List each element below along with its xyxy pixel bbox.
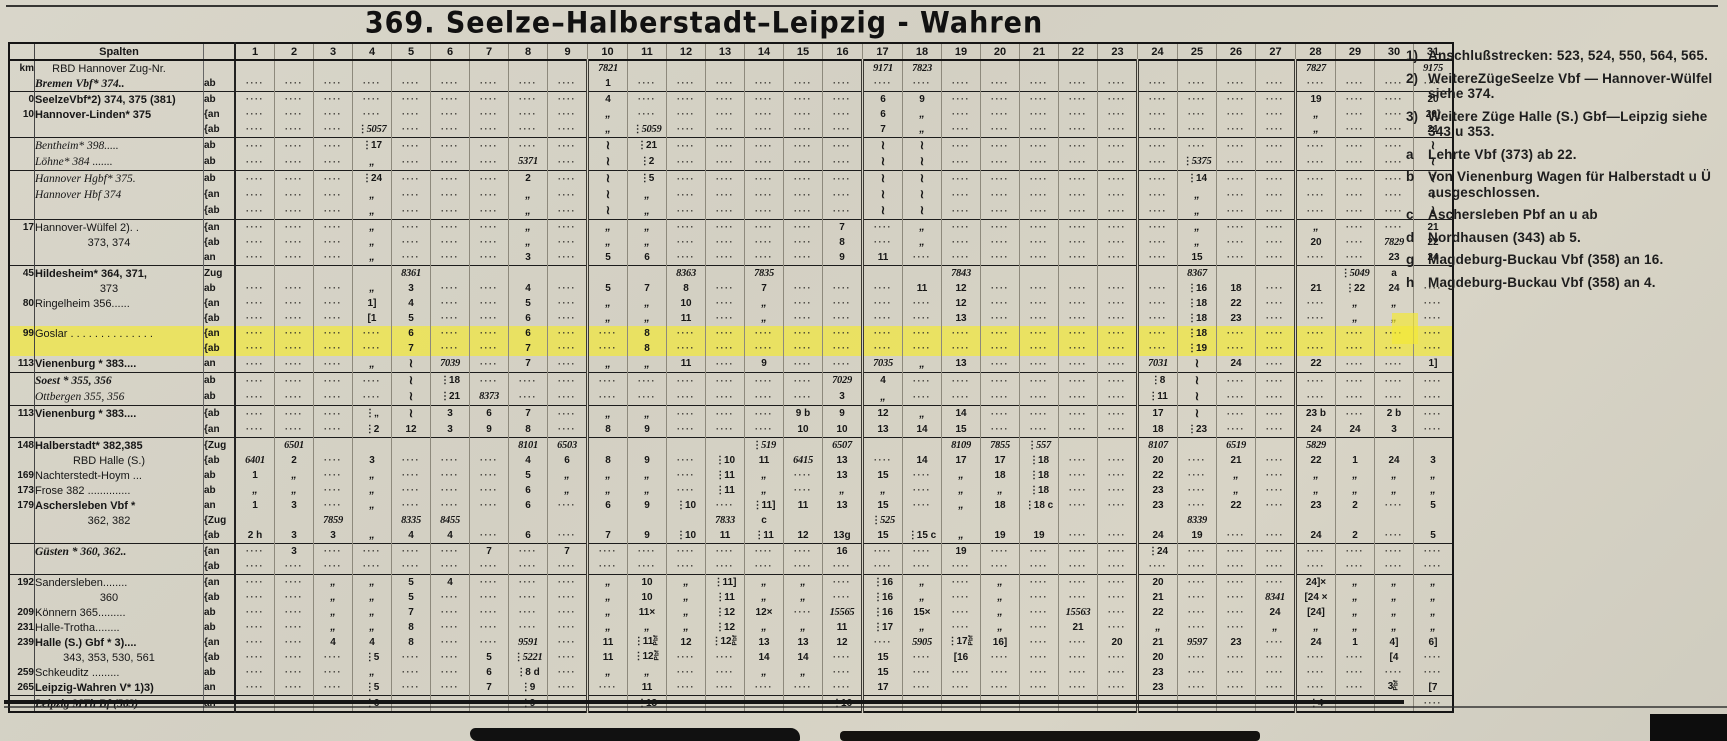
no-service-dots: ···· xyxy=(677,78,695,88)
time-cell: ···· xyxy=(981,406,1020,423)
arr-dep-label: {an xyxy=(204,296,236,311)
time-cell: ···· xyxy=(981,544,1020,560)
time-value: 7823 xyxy=(912,63,932,74)
no-service-dots: ···· xyxy=(794,313,812,323)
time-cell: ···· xyxy=(784,122,823,138)
time-cell: 6 xyxy=(509,528,548,544)
time-value: 24]× xyxy=(1306,577,1326,588)
no-service-dots: ···· xyxy=(1385,124,1403,134)
no-service-dots: ···· xyxy=(480,592,498,602)
no-service-dots: ···· xyxy=(1069,283,1087,293)
no-service-dots: ···· xyxy=(441,607,459,617)
no-service-dots: ···· xyxy=(1307,313,1325,323)
time-cell xyxy=(1098,513,1138,528)
time-cell: ···· xyxy=(275,171,314,188)
arr-dep-label: {ab xyxy=(204,453,236,468)
time-cell: ···· xyxy=(1336,373,1375,390)
time-cell: 11 xyxy=(667,311,706,326)
time-cell: 5 xyxy=(509,468,548,483)
table-row: 173Frose 382 ..............ab„„····„····… xyxy=(9,483,1453,498)
time-cell: ···· xyxy=(275,281,314,296)
no-service-dots: ···· xyxy=(246,94,264,104)
through-run-squiggle: ≀ xyxy=(409,389,414,403)
no-service-dots: ···· xyxy=(558,252,576,262)
no-service-dots: ···· xyxy=(441,94,459,104)
time-cell: ···· xyxy=(784,76,823,92)
time-cell: ···· xyxy=(1296,389,1336,406)
no-service-dots: ···· xyxy=(1069,141,1087,151)
time-cell: „ xyxy=(628,406,667,423)
time-cell: 9591 xyxy=(509,635,548,650)
no-service-dots: ···· xyxy=(519,141,537,151)
time-cell: 8455 xyxy=(431,513,470,528)
time-cell: „ xyxy=(823,483,863,498)
time-cell: 7821 xyxy=(588,60,628,76)
no-service-dots: ···· xyxy=(363,376,381,386)
time-value: 8107 xyxy=(1148,440,1168,451)
time-cell: ···· xyxy=(667,665,706,680)
time-value: 17 xyxy=(1152,408,1163,419)
time-cell: ···· xyxy=(823,356,863,373)
time-value: 6 xyxy=(525,328,531,339)
no-service-dots: ···· xyxy=(1030,283,1048,293)
no-service-dots: ···· xyxy=(794,376,812,386)
ditto-mark: „ xyxy=(800,621,806,633)
arr-dep-label: {ab xyxy=(204,341,236,356)
time-cell: „ xyxy=(628,356,667,373)
time-cell: „ xyxy=(942,498,981,513)
connector-mark: ⋮ xyxy=(676,530,685,541)
time-cell: ⋮2 xyxy=(628,154,667,171)
time-value: 2 xyxy=(525,173,531,184)
time-cell: ···· xyxy=(1178,665,1217,680)
time-value: 4 xyxy=(408,530,414,541)
time-cell: ···· xyxy=(1414,389,1454,406)
no-service-dots: ···· xyxy=(952,328,970,338)
no-service-dots: ···· xyxy=(1108,328,1126,338)
time-cell: ···· xyxy=(628,544,667,560)
time-cell: ···· xyxy=(706,356,745,373)
no-service-dots: ···· xyxy=(1030,667,1048,677)
time-cell xyxy=(1059,266,1098,282)
no-service-dots: ···· xyxy=(363,343,381,353)
ditto-mark: „ xyxy=(644,205,650,217)
time-cell: ···· xyxy=(1256,250,1296,266)
time-cell: ···· xyxy=(275,107,314,122)
time-cell: ···· xyxy=(1256,154,1296,171)
time-value: 6 xyxy=(525,530,531,541)
time-cell: ···· xyxy=(942,665,981,680)
ditto-mark: „ xyxy=(605,236,611,248)
time-cell: 8341 xyxy=(1256,590,1296,605)
time-cell: ···· xyxy=(431,92,470,108)
time-value: 12 xyxy=(955,283,966,294)
time-value: 22 xyxy=(1310,358,1321,369)
table-row: Bentheim* 398.....ab············⋮17·····… xyxy=(9,138,1453,155)
no-service-dots: ···· xyxy=(716,124,734,134)
no-service-dots: ···· xyxy=(1108,237,1126,247)
no-service-dots: ···· xyxy=(402,652,420,662)
no-service-dots: ···· xyxy=(833,359,851,369)
no-service-dots: ···· xyxy=(1424,561,1442,571)
time-value: 5905 xyxy=(912,637,932,648)
no-service-dots: ···· xyxy=(1307,546,1325,556)
time-cell: ···· xyxy=(1414,696,1454,713)
time-cell: ···· xyxy=(1414,311,1454,326)
no-service-dots: ···· xyxy=(480,561,498,571)
time-cell: ···· xyxy=(431,635,470,650)
time-cell: ···· xyxy=(235,406,275,423)
time-cell: ···· xyxy=(314,171,353,188)
time-cell: 9 b xyxy=(784,406,823,423)
time-cell: ···· xyxy=(1375,498,1414,513)
no-service-dots: ···· xyxy=(638,392,656,402)
connector-mark: ⋮ xyxy=(1341,268,1350,279)
time-cell: ···· xyxy=(509,138,548,155)
time-cell: ···· xyxy=(314,544,353,560)
time-cell: ···· xyxy=(706,296,745,311)
time-cell: ≀ xyxy=(1178,373,1217,390)
time-cell: „ xyxy=(353,590,392,605)
table-row: 373ab············„3········4····578····7… xyxy=(9,281,1453,296)
time-cell: 4 xyxy=(509,281,548,296)
no-service-dots: ···· xyxy=(1149,78,1167,88)
no-service-dots: ···· xyxy=(716,298,734,308)
time-cell: ···· xyxy=(1138,138,1178,155)
time-value: 14 xyxy=(797,652,808,663)
no-service-dots: ···· xyxy=(441,283,459,293)
time-cell: ···· xyxy=(667,138,706,155)
no-service-dots: ···· xyxy=(324,485,342,495)
time-cell: ···· xyxy=(667,422,706,438)
time-cell: 7827 xyxy=(1296,60,1336,76)
note-label: 3) xyxy=(1406,109,1428,140)
time-cell: 3 xyxy=(431,406,470,423)
time-cell: 16] xyxy=(981,635,1020,650)
no-service-dots: ···· xyxy=(1385,561,1403,571)
time-value: 6] xyxy=(1429,637,1438,648)
time-cell xyxy=(1138,266,1178,282)
time-cell: „ xyxy=(1296,220,1336,236)
time-value: 17 xyxy=(877,682,888,693)
time-cell: ···· xyxy=(863,341,903,356)
ditto-mark: „ xyxy=(761,591,767,603)
timetable: Spalten123456789101112131415161718192021… xyxy=(8,42,1454,713)
time-cell: ···· xyxy=(1217,341,1256,356)
time-cell: ···· xyxy=(745,203,784,220)
time-value: 20 xyxy=(1152,577,1163,588)
time-cell: ···· xyxy=(353,373,392,390)
time-value: 10 xyxy=(641,592,652,603)
time-cell: „ xyxy=(1336,620,1375,635)
time-cell: ···· xyxy=(548,250,588,266)
time-cell: 19 xyxy=(1020,528,1059,544)
time-value: 5 xyxy=(374,682,380,693)
km-cell xyxy=(9,250,35,266)
time-cell: 15 xyxy=(942,422,981,438)
time-cell: ···· xyxy=(784,154,823,171)
time-cell: ···· xyxy=(903,559,942,575)
station-label: Schkeuditz ......... xyxy=(35,665,204,680)
no-service-dots: ···· xyxy=(677,561,695,571)
table-row: 17Hannover-Wülfel 2). .{an············„·… xyxy=(9,220,1453,236)
time-cell: ···· xyxy=(1020,605,1059,620)
arr-dep-label: ab xyxy=(204,373,236,390)
time-cell: „ xyxy=(745,620,784,635)
ditto-mark: „ xyxy=(1194,221,1200,233)
time-cell: ···· xyxy=(1098,326,1138,341)
no-service-dots: ···· xyxy=(1069,78,1087,88)
no-service-dots: ···· xyxy=(599,392,617,402)
time-cell: ···· xyxy=(667,187,706,203)
no-service-dots: ···· xyxy=(1346,157,1364,167)
station-label: Löhne* 384 ....... xyxy=(35,154,204,171)
time-cell: ···· xyxy=(1256,559,1296,575)
ditto-mark: „ xyxy=(1391,297,1397,309)
no-service-dots: ···· xyxy=(1069,561,1087,571)
time-cell: ···· xyxy=(1059,498,1098,513)
time-cell: 7835 xyxy=(745,266,784,282)
ditto-mark: „ xyxy=(1391,591,1397,603)
time-cell: ···· xyxy=(784,311,823,326)
time-cell: ···· xyxy=(1020,341,1059,356)
time-cell: „ xyxy=(588,296,628,311)
time-cell: ···· xyxy=(981,326,1020,341)
time-cell: „ xyxy=(628,187,667,203)
time-cell: ···· xyxy=(548,422,588,438)
time-cell: „ xyxy=(903,575,942,591)
time-cell: ···· xyxy=(548,281,588,296)
no-service-dots: ···· xyxy=(246,622,264,632)
time-value: 13 xyxy=(955,358,966,369)
no-service-dots: ···· xyxy=(1227,424,1245,434)
time-cell: ···· xyxy=(353,107,392,122)
time-cell: ···· xyxy=(1098,665,1138,680)
no-service-dots: ···· xyxy=(480,124,498,134)
no-service-dots: ···· xyxy=(324,546,342,556)
connector-mark: ⋮ xyxy=(1148,391,1157,402)
time-value: 18 xyxy=(1230,283,1241,294)
no-service-dots: ···· xyxy=(1266,652,1284,662)
no-service-dots: ···· xyxy=(1424,409,1442,419)
no-service-dots: ···· xyxy=(1346,392,1364,402)
ditto-mark: „ xyxy=(1430,484,1436,496)
time-cell: ···· xyxy=(431,590,470,605)
km-cell: 17 xyxy=(9,220,35,236)
no-service-dots: ···· xyxy=(1108,298,1126,308)
no-service-dots: ···· xyxy=(324,359,342,369)
time-cell: ···· xyxy=(275,406,314,423)
time-cell: „ xyxy=(1256,620,1296,635)
no-service-dots: ···· xyxy=(1266,94,1284,104)
no-service-dots: ···· xyxy=(1188,124,1206,134)
time-cell: ···· xyxy=(784,187,823,203)
no-service-dots: ···· xyxy=(833,109,851,119)
time-cell: ···· xyxy=(392,122,431,138)
time-cell: ···· xyxy=(1217,665,1256,680)
time-cell xyxy=(588,438,628,454)
time-cell: ···· xyxy=(706,341,745,356)
time-cell: ···· xyxy=(509,122,548,138)
time-cell: ⋮11 xyxy=(1138,389,1178,406)
no-service-dots: ···· xyxy=(285,424,303,434)
time-cell: ···· xyxy=(1138,281,1178,296)
time-cell: ···· xyxy=(667,544,706,560)
no-service-dots: ···· xyxy=(1307,174,1325,184)
time-cell: ···· xyxy=(1178,620,1217,635)
no-service-dots: ···· xyxy=(441,237,459,247)
time-value: 6 xyxy=(644,252,650,263)
station-label: Ringelheim 356...... xyxy=(35,296,204,311)
time-cell: ⋮519 xyxy=(745,438,784,454)
time-cell xyxy=(863,438,903,454)
no-service-dots: ···· xyxy=(480,607,498,617)
time-cell: 10 xyxy=(628,590,667,605)
time-cell: ···· xyxy=(470,154,509,171)
no-service-dots: ···· xyxy=(285,313,303,323)
time-value: 7 xyxy=(644,283,650,294)
time-cell: ≀ xyxy=(588,203,628,220)
no-service-dots: ···· xyxy=(285,94,303,104)
time-cell: ···· xyxy=(1375,356,1414,373)
time-value: 5375 xyxy=(1192,156,1212,167)
time-cell: ⋮18 c xyxy=(1020,498,1059,513)
time-cell: ⋮21 xyxy=(431,389,470,406)
time-cell: ···· xyxy=(470,138,509,155)
note-text: Magdeburg-Buckau Vbf (358) an 4. xyxy=(1428,275,1720,291)
time-value: 2 xyxy=(374,424,380,435)
time-cell: ···· xyxy=(1217,76,1256,92)
time-cell: 6 xyxy=(628,250,667,266)
time-cell: „ xyxy=(903,406,942,423)
time-cell: 7843 xyxy=(942,266,981,282)
no-service-dots: ···· xyxy=(285,328,303,338)
time-cell: ···· xyxy=(823,575,863,591)
time-cell: „ xyxy=(548,483,588,498)
time-cell: ···· xyxy=(1217,620,1256,635)
time-cell: ···· xyxy=(1256,575,1296,591)
no-service-dots: ···· xyxy=(1030,94,1048,104)
time-value: 20 xyxy=(1111,637,1122,648)
time-value: 6 xyxy=(525,485,531,496)
time-cell: ···· xyxy=(1178,107,1217,122)
pbf-label: Pbf xyxy=(964,639,978,646)
no-service-dots: ···· xyxy=(1346,409,1364,419)
time-cell: 9597 xyxy=(1178,635,1217,650)
no-service-dots: ···· xyxy=(913,376,931,386)
no-service-dots: ···· xyxy=(991,343,1009,353)
no-service-dots: ···· xyxy=(1069,682,1087,692)
time-cell: ···· xyxy=(942,590,981,605)
time-cell: ···· xyxy=(431,620,470,635)
time-cell: ···· xyxy=(1217,187,1256,203)
time-cell: „ xyxy=(548,468,588,483)
time-cell: [24] xyxy=(1296,605,1336,620)
through-run-squiggle: ≀ xyxy=(606,171,611,185)
time-cell: „ xyxy=(353,468,392,483)
connector-mark: ⋮ xyxy=(715,485,724,496)
no-service-dots: ···· xyxy=(1346,252,1364,262)
time-cell: ≀ xyxy=(903,171,942,188)
no-service-dots: ···· xyxy=(558,190,576,200)
table-row: 343, 353, 530, 561{ab············⋮5·····… xyxy=(9,650,1453,665)
time-value: 14 xyxy=(955,408,966,419)
no-service-dots: ···· xyxy=(755,141,773,151)
time-value: 1 xyxy=(605,78,611,89)
time-cell: ···· xyxy=(470,203,509,220)
time-cell: ···· xyxy=(235,281,275,296)
ditto-mark: „ xyxy=(919,236,925,248)
time-cell: ···· xyxy=(431,154,470,171)
no-service-dots: ···· xyxy=(755,124,773,134)
table-row: 239Halle (S.) Gbf * 3)....{an········448… xyxy=(9,635,1453,650)
time-cell xyxy=(1098,60,1138,76)
time-cell: „ xyxy=(1375,296,1414,311)
no-service-dots: ···· xyxy=(1188,592,1206,602)
no-service-dots: ···· xyxy=(991,682,1009,692)
time-cell: ···· xyxy=(706,107,745,122)
time-cell: ···· xyxy=(1138,107,1178,122)
time-cell: ⋮18 xyxy=(1178,311,1217,326)
time-cell: 24 xyxy=(1375,453,1414,468)
time-value: 8 xyxy=(1160,375,1166,386)
time-cell xyxy=(1059,513,1098,528)
time-cell: ···· xyxy=(392,235,431,250)
time-cell: 2 xyxy=(275,453,314,468)
time-cell: ···· xyxy=(981,373,1020,390)
time-cell: ···· xyxy=(275,680,314,696)
time-cell: ···· xyxy=(1217,326,1256,341)
time-value: 7 xyxy=(525,408,531,419)
time-cell: ···· xyxy=(235,665,275,680)
no-service-dots: ···· xyxy=(794,157,812,167)
time-cell: 8339 xyxy=(1178,513,1217,528)
time-cell: ···· xyxy=(784,235,823,250)
time-cell: ···· xyxy=(903,468,942,483)
time-value: 8109 xyxy=(951,440,971,451)
arr-dep-label: Zug xyxy=(204,266,236,282)
time-cell: 5 xyxy=(1414,528,1454,544)
time-value: [1 xyxy=(368,313,377,324)
no-service-dots: ···· xyxy=(480,359,498,369)
time-cell: ···· xyxy=(275,605,314,620)
no-service-dots: ···· xyxy=(519,109,537,119)
time-cell: ⋮18 xyxy=(1020,483,1059,498)
arr-dep-label: {an xyxy=(204,187,236,203)
time-cell: ···· xyxy=(1059,650,1098,665)
time-cell: 7039 xyxy=(431,356,470,373)
time-value: [16 xyxy=(954,652,968,663)
no-service-dots: ···· xyxy=(324,343,342,353)
time-value: 21 xyxy=(1310,283,1321,294)
time-cell: „ xyxy=(628,483,667,498)
time-value: 4 xyxy=(447,577,453,588)
time-cell: ···· xyxy=(431,498,470,513)
time-value: 6 xyxy=(525,313,531,324)
time-value: 12× xyxy=(756,607,773,618)
time-cell: ···· xyxy=(509,590,548,605)
no-service-dots: ···· xyxy=(441,313,459,323)
time-cell: 7823 xyxy=(903,60,942,76)
time-value: 17 xyxy=(994,455,1005,466)
arr-dep-label: ab xyxy=(204,138,236,155)
no-service-dots: ···· xyxy=(1227,561,1245,571)
ditto-mark: „ xyxy=(644,312,650,324)
ditto-mark: „ xyxy=(683,606,689,618)
time-value: 18 xyxy=(994,500,1005,511)
time-value: 3 xyxy=(525,252,531,263)
time-cell: ···· xyxy=(667,326,706,341)
